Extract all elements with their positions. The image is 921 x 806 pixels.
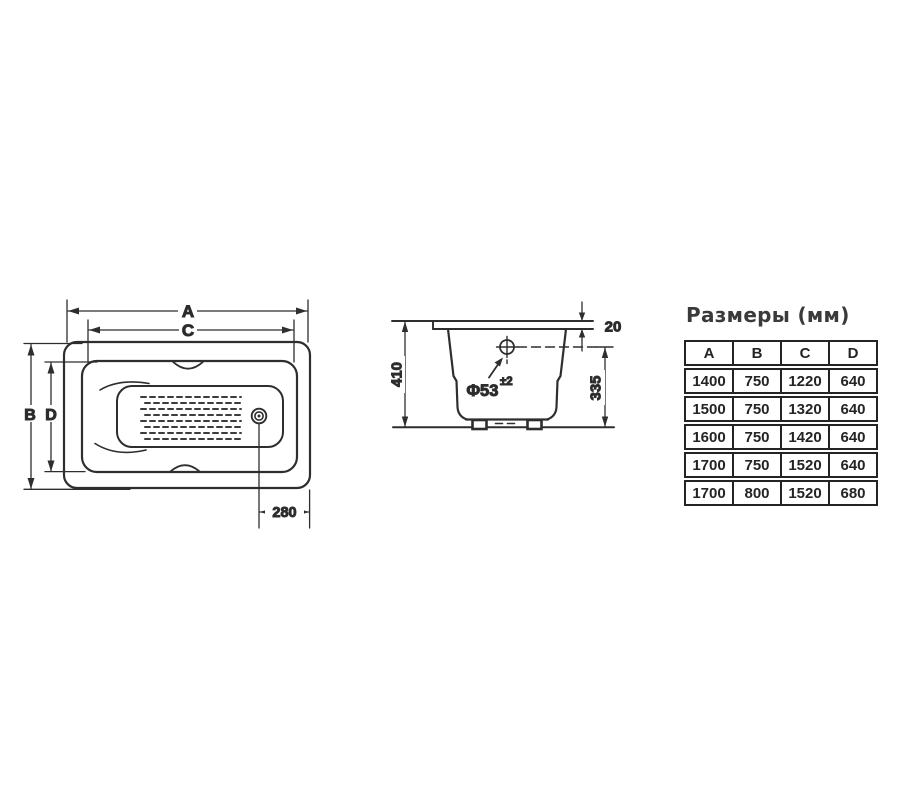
arrowhead xyxy=(296,308,307,315)
arrowhead xyxy=(282,327,293,334)
tub-left-wall xyxy=(448,329,467,420)
arrowhead xyxy=(495,358,504,367)
arrowhead xyxy=(89,327,100,334)
tub-rim-inner-edge xyxy=(82,361,297,472)
table-cell: 640 xyxy=(828,368,878,394)
tub-right-wall xyxy=(547,329,566,420)
table-cell: 1520 xyxy=(780,452,828,478)
table-cell: 1500 xyxy=(684,396,732,422)
drain-section-view xyxy=(497,337,518,364)
dim-label-280: 280 xyxy=(272,505,296,521)
table-cell: 640 xyxy=(828,452,878,478)
dim-label-C: C xyxy=(182,321,194,340)
arrowhead xyxy=(579,329,585,338)
table-cell: 1420 xyxy=(780,424,828,450)
col-header-A: A xyxy=(684,340,732,366)
arrowhead xyxy=(68,308,79,315)
size-table-title: Размеры (мм) xyxy=(686,303,878,327)
arrowhead xyxy=(402,322,408,333)
callout-leader xyxy=(489,363,499,378)
table-row: 1700 800 1520 680 xyxy=(684,480,878,506)
table-cell: 640 xyxy=(828,424,878,450)
table-cell: 680 xyxy=(828,480,878,506)
drain-top-view xyxy=(252,409,267,424)
bathtub-top-view: A C B D 280 xyxy=(22,300,310,528)
table-row: 1700 750 1520 640 xyxy=(684,452,878,478)
dim-label-D: D xyxy=(45,407,57,424)
table-cell: 1700 xyxy=(684,452,732,478)
col-header-B: B xyxy=(732,340,780,366)
dim-label-A: A xyxy=(182,302,194,321)
dim-label-335: 335 xyxy=(588,375,605,400)
arrowhead xyxy=(602,348,608,359)
table-cell: 800 xyxy=(732,480,780,506)
bathtub-section-view: 410 20 335 Φ53 ±2 xyxy=(389,302,622,429)
table-cell: 1400 xyxy=(684,368,732,394)
arrowhead xyxy=(402,417,408,428)
arrowhead xyxy=(579,313,585,322)
table-cell: 1220 xyxy=(780,368,828,394)
table-cell: 1320 xyxy=(780,396,828,422)
drain-diameter-label: Φ53 xyxy=(467,382,499,400)
bathtub-spec-sheet: A C B D 280 xyxy=(0,0,921,806)
arrowhead xyxy=(48,363,55,374)
arrowhead xyxy=(28,345,35,356)
size-table-block: Размеры (мм) A B C D 1400 750 1220 640 xyxy=(684,303,878,508)
dim-label-20: 20 xyxy=(605,319,622,336)
dim-B xyxy=(24,344,130,490)
top-grip-notch xyxy=(173,362,203,369)
dim-label-B: B xyxy=(24,407,36,424)
size-table: A B C D 1400 750 1220 640 1500 750 1320 xyxy=(684,338,878,508)
dim-label-410: 410 xyxy=(389,362,406,387)
right-foot xyxy=(528,420,542,429)
table-cell: 750 xyxy=(732,396,780,422)
table-cell: 1600 xyxy=(684,424,732,450)
table-cell: 1520 xyxy=(780,480,828,506)
arrowhead xyxy=(28,478,35,489)
table-cell: 750 xyxy=(732,452,780,478)
table-row: 1600 750 1420 640 xyxy=(684,424,878,450)
col-header-D: D xyxy=(828,340,878,366)
table-cell: 640 xyxy=(828,396,878,422)
table-cell: 750 xyxy=(732,368,780,394)
arrowhead xyxy=(48,461,55,472)
table-header-row: A B C D xyxy=(684,340,878,366)
table-cell: 1700 xyxy=(684,480,732,506)
anti-slip-texture xyxy=(141,397,241,439)
col-header-C: C xyxy=(780,340,828,366)
drain-tolerance-label: ±2 xyxy=(500,376,513,388)
left-foot xyxy=(473,420,487,429)
table-cell: 750 xyxy=(732,424,780,450)
table-row: 1500 750 1320 640 xyxy=(684,396,878,422)
arrowhead xyxy=(602,417,608,428)
bottom-grip-notch xyxy=(170,465,200,472)
table-row: 1400 750 1220 640 xyxy=(684,368,878,394)
